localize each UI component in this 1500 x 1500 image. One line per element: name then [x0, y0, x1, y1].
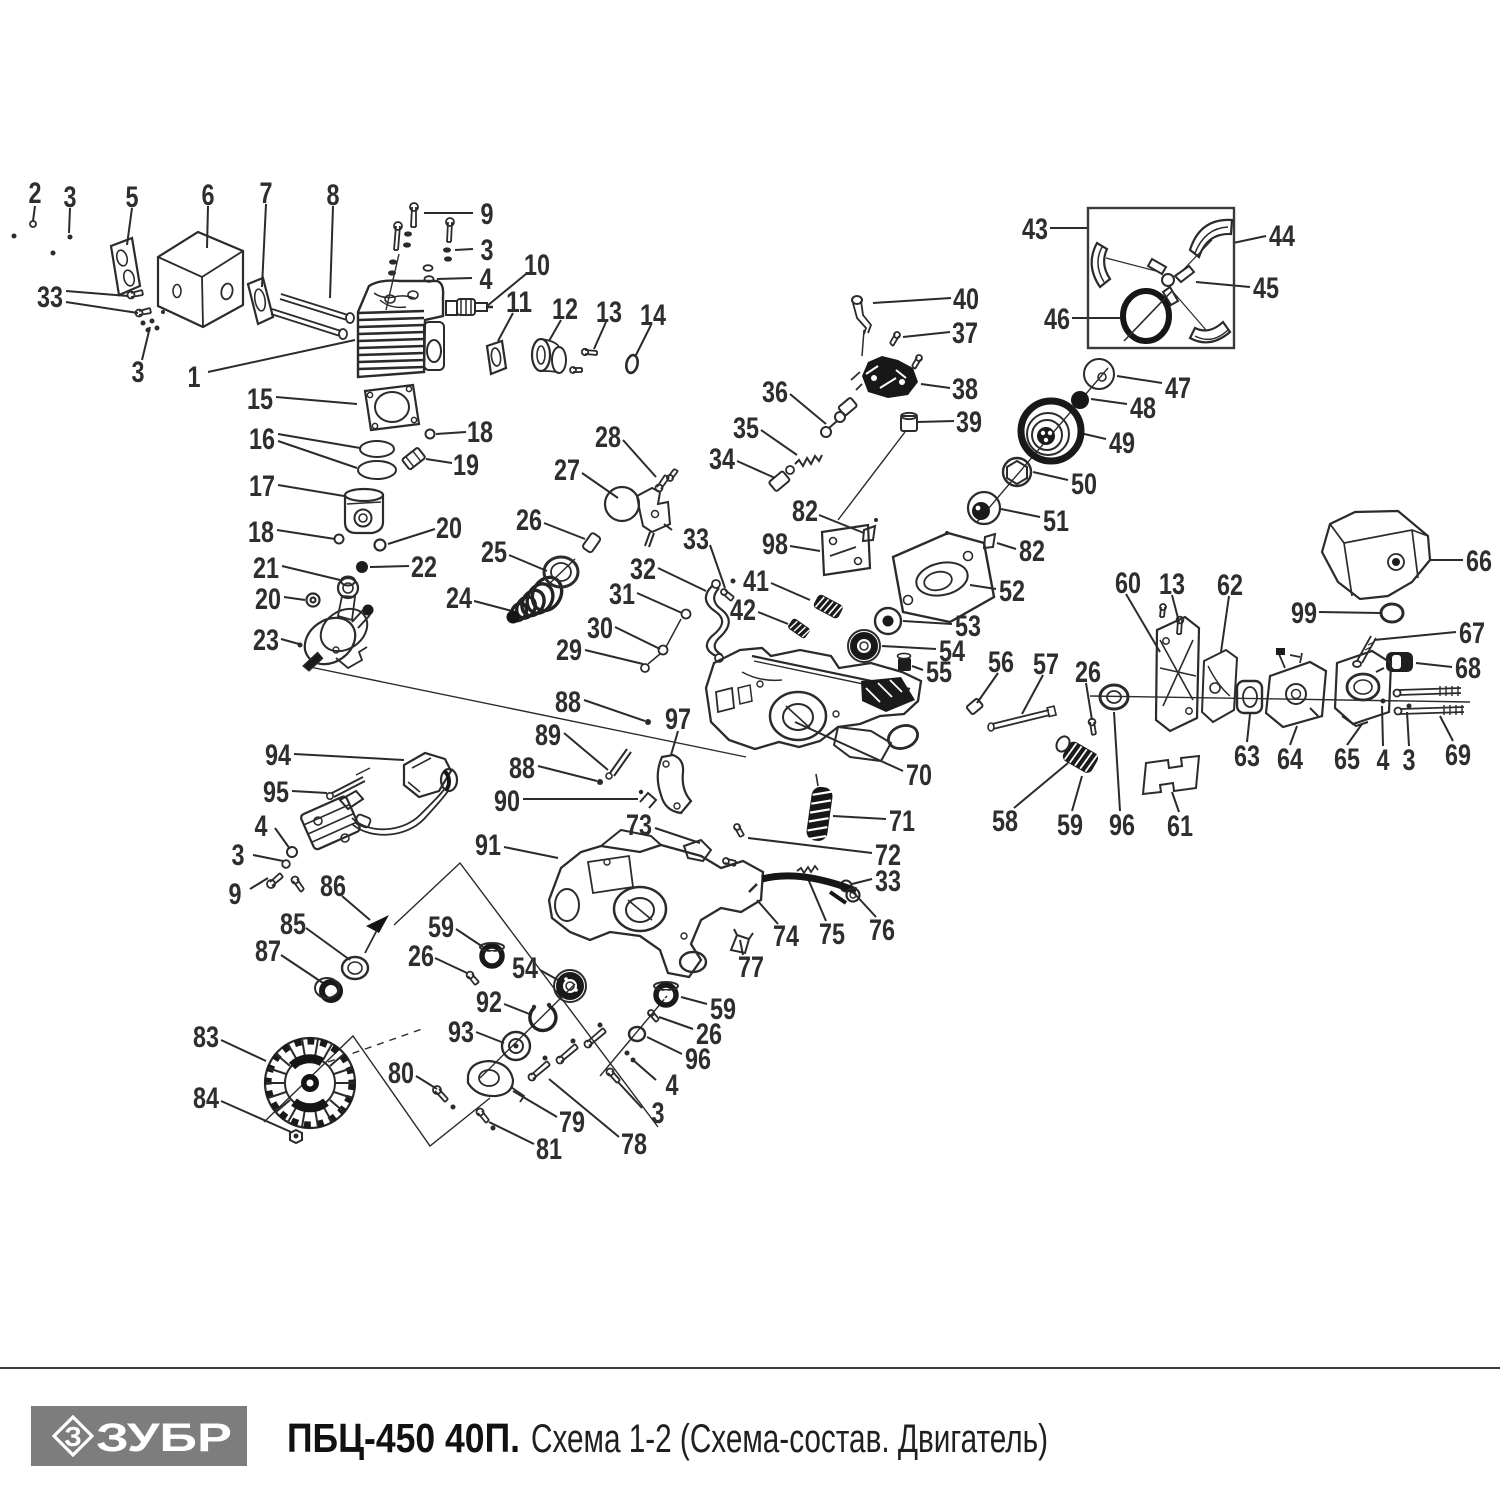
svg-text:27: 27: [554, 454, 580, 487]
svg-text:39: 39: [956, 406, 982, 439]
svg-text:68: 68: [1455, 652, 1481, 685]
svg-text:26: 26: [516, 504, 542, 537]
svg-text:30: 30: [587, 612, 613, 645]
svg-text:77: 77: [738, 951, 764, 984]
svg-text:74: 74: [773, 920, 799, 953]
svg-text:4: 4: [666, 1069, 679, 1102]
svg-text:92: 92: [476, 986, 502, 1019]
svg-text:ПБЦ-450 40П.: ПБЦ-450 40П.: [287, 1415, 520, 1461]
svg-text:3: 3: [64, 181, 77, 214]
svg-text:69: 69: [1445, 739, 1471, 772]
svg-text:22: 22: [411, 551, 437, 584]
svg-text:16: 16: [249, 423, 275, 456]
svg-text:26: 26: [1075, 656, 1101, 689]
svg-text:83: 83: [193, 1021, 219, 1054]
svg-text:65: 65: [1334, 743, 1360, 776]
svg-text:60: 60: [1115, 567, 1141, 600]
svg-text:40: 40: [953, 283, 979, 316]
svg-text:51: 51: [1043, 505, 1069, 538]
svg-text:6: 6: [202, 179, 215, 212]
svg-text:75: 75: [819, 918, 845, 951]
svg-text:82: 82: [1019, 535, 1045, 568]
svg-text:70: 70: [906, 759, 932, 792]
svg-text:64: 64: [1277, 743, 1303, 776]
svg-text:4: 4: [255, 810, 268, 843]
svg-text:58: 58: [992, 805, 1018, 838]
svg-text:54: 54: [512, 952, 538, 985]
svg-text:99: 99: [1291, 597, 1317, 630]
svg-text:34: 34: [709, 443, 735, 476]
svg-text:78: 78: [621, 1128, 647, 1161]
svg-text:80: 80: [388, 1057, 414, 1090]
svg-text:61: 61: [1167, 810, 1193, 843]
svg-text:66: 66: [1466, 545, 1492, 578]
svg-text:20: 20: [255, 583, 281, 616]
svg-text:1: 1: [188, 361, 201, 394]
svg-text:57: 57: [1033, 648, 1059, 681]
svg-text:97: 97: [665, 703, 691, 736]
svg-text:9: 9: [229, 878, 242, 911]
svg-text:62: 62: [1217, 569, 1243, 602]
svg-text:43: 43: [1022, 213, 1048, 246]
svg-text:46: 46: [1044, 303, 1070, 336]
svg-text:19: 19: [453, 449, 479, 482]
svg-text:13: 13: [1159, 568, 1185, 601]
svg-text:8: 8: [327, 179, 340, 212]
svg-text:23: 23: [253, 624, 279, 657]
svg-text:86: 86: [320, 870, 346, 903]
svg-text:3: 3: [132, 356, 145, 389]
svg-text:55: 55: [926, 656, 952, 689]
svg-text:Схема 1-2 (Схема-состав. Двига: Схема 1-2 (Схема-состав. Двигатель): [531, 1417, 1048, 1461]
svg-text:15: 15: [247, 383, 273, 416]
svg-text:76: 76: [869, 914, 895, 947]
svg-text:50: 50: [1071, 468, 1097, 501]
svg-text:56: 56: [988, 646, 1014, 679]
svg-text:24: 24: [446, 582, 472, 615]
svg-text:37: 37: [952, 317, 978, 350]
svg-text:42: 42: [730, 594, 756, 627]
svg-text:67: 67: [1459, 617, 1485, 650]
svg-text:35: 35: [733, 412, 759, 445]
svg-text:93: 93: [448, 1016, 474, 1049]
svg-text:44: 44: [1269, 220, 1295, 253]
svg-text:49: 49: [1109, 427, 1135, 460]
svg-text:98: 98: [762, 528, 788, 561]
svg-text:20: 20: [436, 512, 462, 545]
svg-text:9: 9: [481, 198, 494, 231]
svg-text:63: 63: [1234, 740, 1260, 773]
svg-text:10: 10: [524, 249, 550, 282]
svg-text:17: 17: [249, 470, 275, 503]
svg-text:7: 7: [260, 177, 273, 210]
svg-text:47: 47: [1165, 372, 1191, 405]
svg-text:3: 3: [652, 1097, 665, 1130]
svg-text:32: 32: [630, 553, 656, 586]
svg-text:4: 4: [480, 263, 493, 296]
svg-text:45: 45: [1253, 272, 1279, 305]
svg-text:59: 59: [1057, 809, 1083, 842]
svg-text:25: 25: [481, 536, 507, 569]
svg-text:38: 38: [952, 373, 978, 406]
svg-text:14: 14: [640, 299, 666, 332]
svg-text:З: З: [64, 1421, 82, 1452]
svg-text:5: 5: [126, 181, 139, 214]
svg-text:88: 88: [509, 752, 535, 785]
svg-text:ЗУБР: ЗУБР: [96, 1416, 232, 1460]
svg-text:91: 91: [475, 829, 501, 862]
svg-text:90: 90: [494, 785, 520, 818]
svg-text:82: 82: [792, 495, 818, 528]
svg-text:73: 73: [626, 809, 652, 842]
svg-text:4: 4: [1377, 744, 1390, 777]
svg-text:2: 2: [29, 177, 42, 210]
svg-text:71: 71: [889, 805, 915, 838]
svg-text:48: 48: [1130, 392, 1156, 425]
svg-text:89: 89: [535, 719, 561, 752]
svg-text:88: 88: [555, 686, 581, 719]
svg-text:94: 94: [265, 739, 291, 772]
svg-text:33: 33: [37, 281, 63, 314]
svg-text:11: 11: [506, 286, 532, 319]
svg-text:36: 36: [762, 376, 788, 409]
svg-text:96: 96: [1109, 809, 1135, 842]
svg-text:29: 29: [556, 634, 582, 667]
svg-text:85: 85: [280, 908, 306, 941]
svg-text:96: 96: [685, 1043, 711, 1076]
svg-text:95: 95: [263, 776, 289, 809]
svg-text:21: 21: [253, 552, 279, 585]
svg-text:81: 81: [536, 1133, 562, 1166]
svg-text:28: 28: [595, 421, 621, 454]
svg-text:87: 87: [255, 935, 281, 968]
svg-text:26: 26: [408, 940, 434, 973]
svg-text:13: 13: [596, 296, 622, 329]
svg-text:52: 52: [999, 575, 1025, 608]
svg-text:3: 3: [1403, 744, 1416, 777]
svg-text:18: 18: [467, 416, 493, 449]
svg-text:84: 84: [193, 1082, 219, 1115]
svg-text:33: 33: [875, 865, 901, 898]
svg-text:18: 18: [248, 516, 274, 549]
svg-text:79: 79: [559, 1106, 585, 1139]
svg-text:12: 12: [552, 293, 578, 326]
svg-text:33: 33: [683, 523, 709, 556]
svg-text:3: 3: [232, 839, 245, 872]
